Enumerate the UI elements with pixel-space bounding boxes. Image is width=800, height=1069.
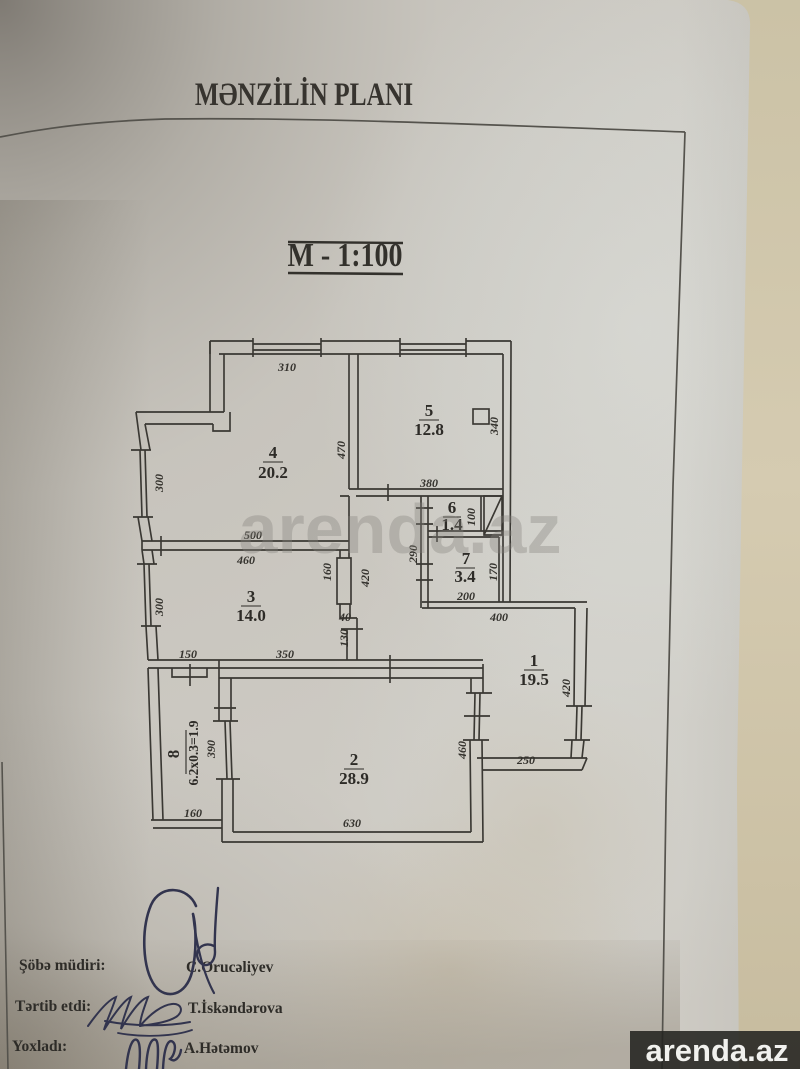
svg-text:A.Hətəmov: A.Hətəmov [184, 1040, 259, 1057]
svg-text:T.İskəndərova: T.İskəndərova [188, 1000, 283, 1017]
svg-text:Tərtib etdi:: Tərtib etdi: [15, 998, 91, 1015]
svg-text:arenda.az: arenda.az [645, 1033, 788, 1068]
svg-text:Şöbə müdiri:: Şöbə müdiri: [19, 957, 106, 974]
svg-text:arenda.az: arenda.az [239, 490, 562, 568]
svg-text:Yoxladı:: Yoxladı: [12, 1038, 67, 1055]
